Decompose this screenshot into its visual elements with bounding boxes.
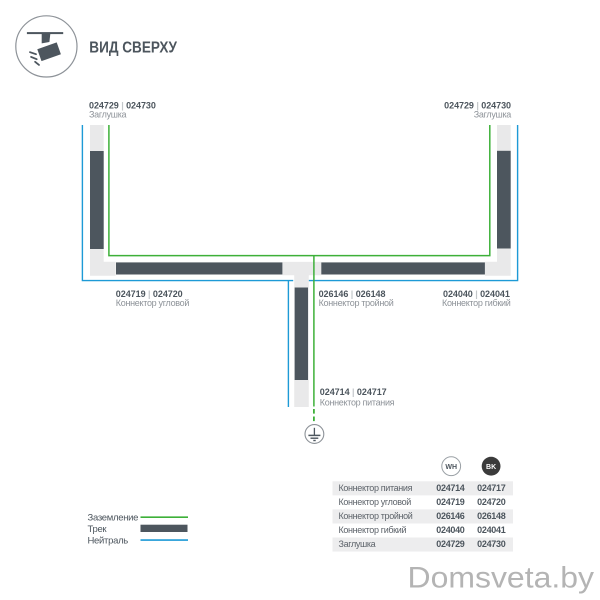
svg-text:WH: WH: [445, 464, 457, 471]
svg-text:Коннектор тройной: Коннектор тройной: [319, 298, 394, 308]
svg-text:Заземление: Заземление: [88, 512, 139, 523]
svg-text:024040: 024040: [436, 525, 465, 535]
svg-text:024714 | 024717: 024714 | 024717: [320, 387, 387, 397]
svg-text:024041: 024041: [477, 525, 506, 535]
svg-text:026148: 026148: [477, 511, 506, 521]
svg-text:Трек: Трек: [88, 524, 108, 535]
svg-text:Коннектор гибкий: Коннектор гибкий: [442, 298, 511, 308]
svg-text:024714: 024714: [436, 483, 465, 493]
svg-text:ВИД СВЕРХУ: ВИД СВЕРХУ: [89, 39, 177, 56]
svg-text:024720: 024720: [477, 497, 506, 507]
svg-text:026146: 026146: [436, 511, 465, 521]
svg-text:Коннектор угловой: Коннектор угловой: [116, 298, 190, 308]
svg-text:Нейтраль: Нейтраль: [88, 535, 129, 546]
svg-text:024719: 024719: [436, 497, 465, 507]
svg-text:024730: 024730: [477, 539, 506, 549]
svg-text:Коннектор тройной: Коннектор тройной: [339, 511, 413, 521]
svg-text:Заглушка: Заглушка: [339, 539, 376, 549]
svg-text:Заглушка: Заглушка: [474, 110, 512, 120]
svg-text:024729: 024729: [436, 539, 465, 549]
svg-text:024717: 024717: [477, 483, 506, 493]
svg-text:Коннектор гибкий: Коннектор гибкий: [339, 525, 407, 535]
svg-text:Коннектор питания: Коннектор питания: [339, 483, 413, 493]
svg-text:Заглушка: Заглушка: [89, 110, 127, 120]
svg-text:BK: BK: [486, 464, 496, 471]
svg-text:Коннектор угловой: Коннектор угловой: [339, 497, 412, 507]
svg-text:Domsveta.by: Domsveta.by: [408, 562, 595, 595]
svg-text:Коннектор питания: Коннектор питания: [320, 398, 395, 408]
